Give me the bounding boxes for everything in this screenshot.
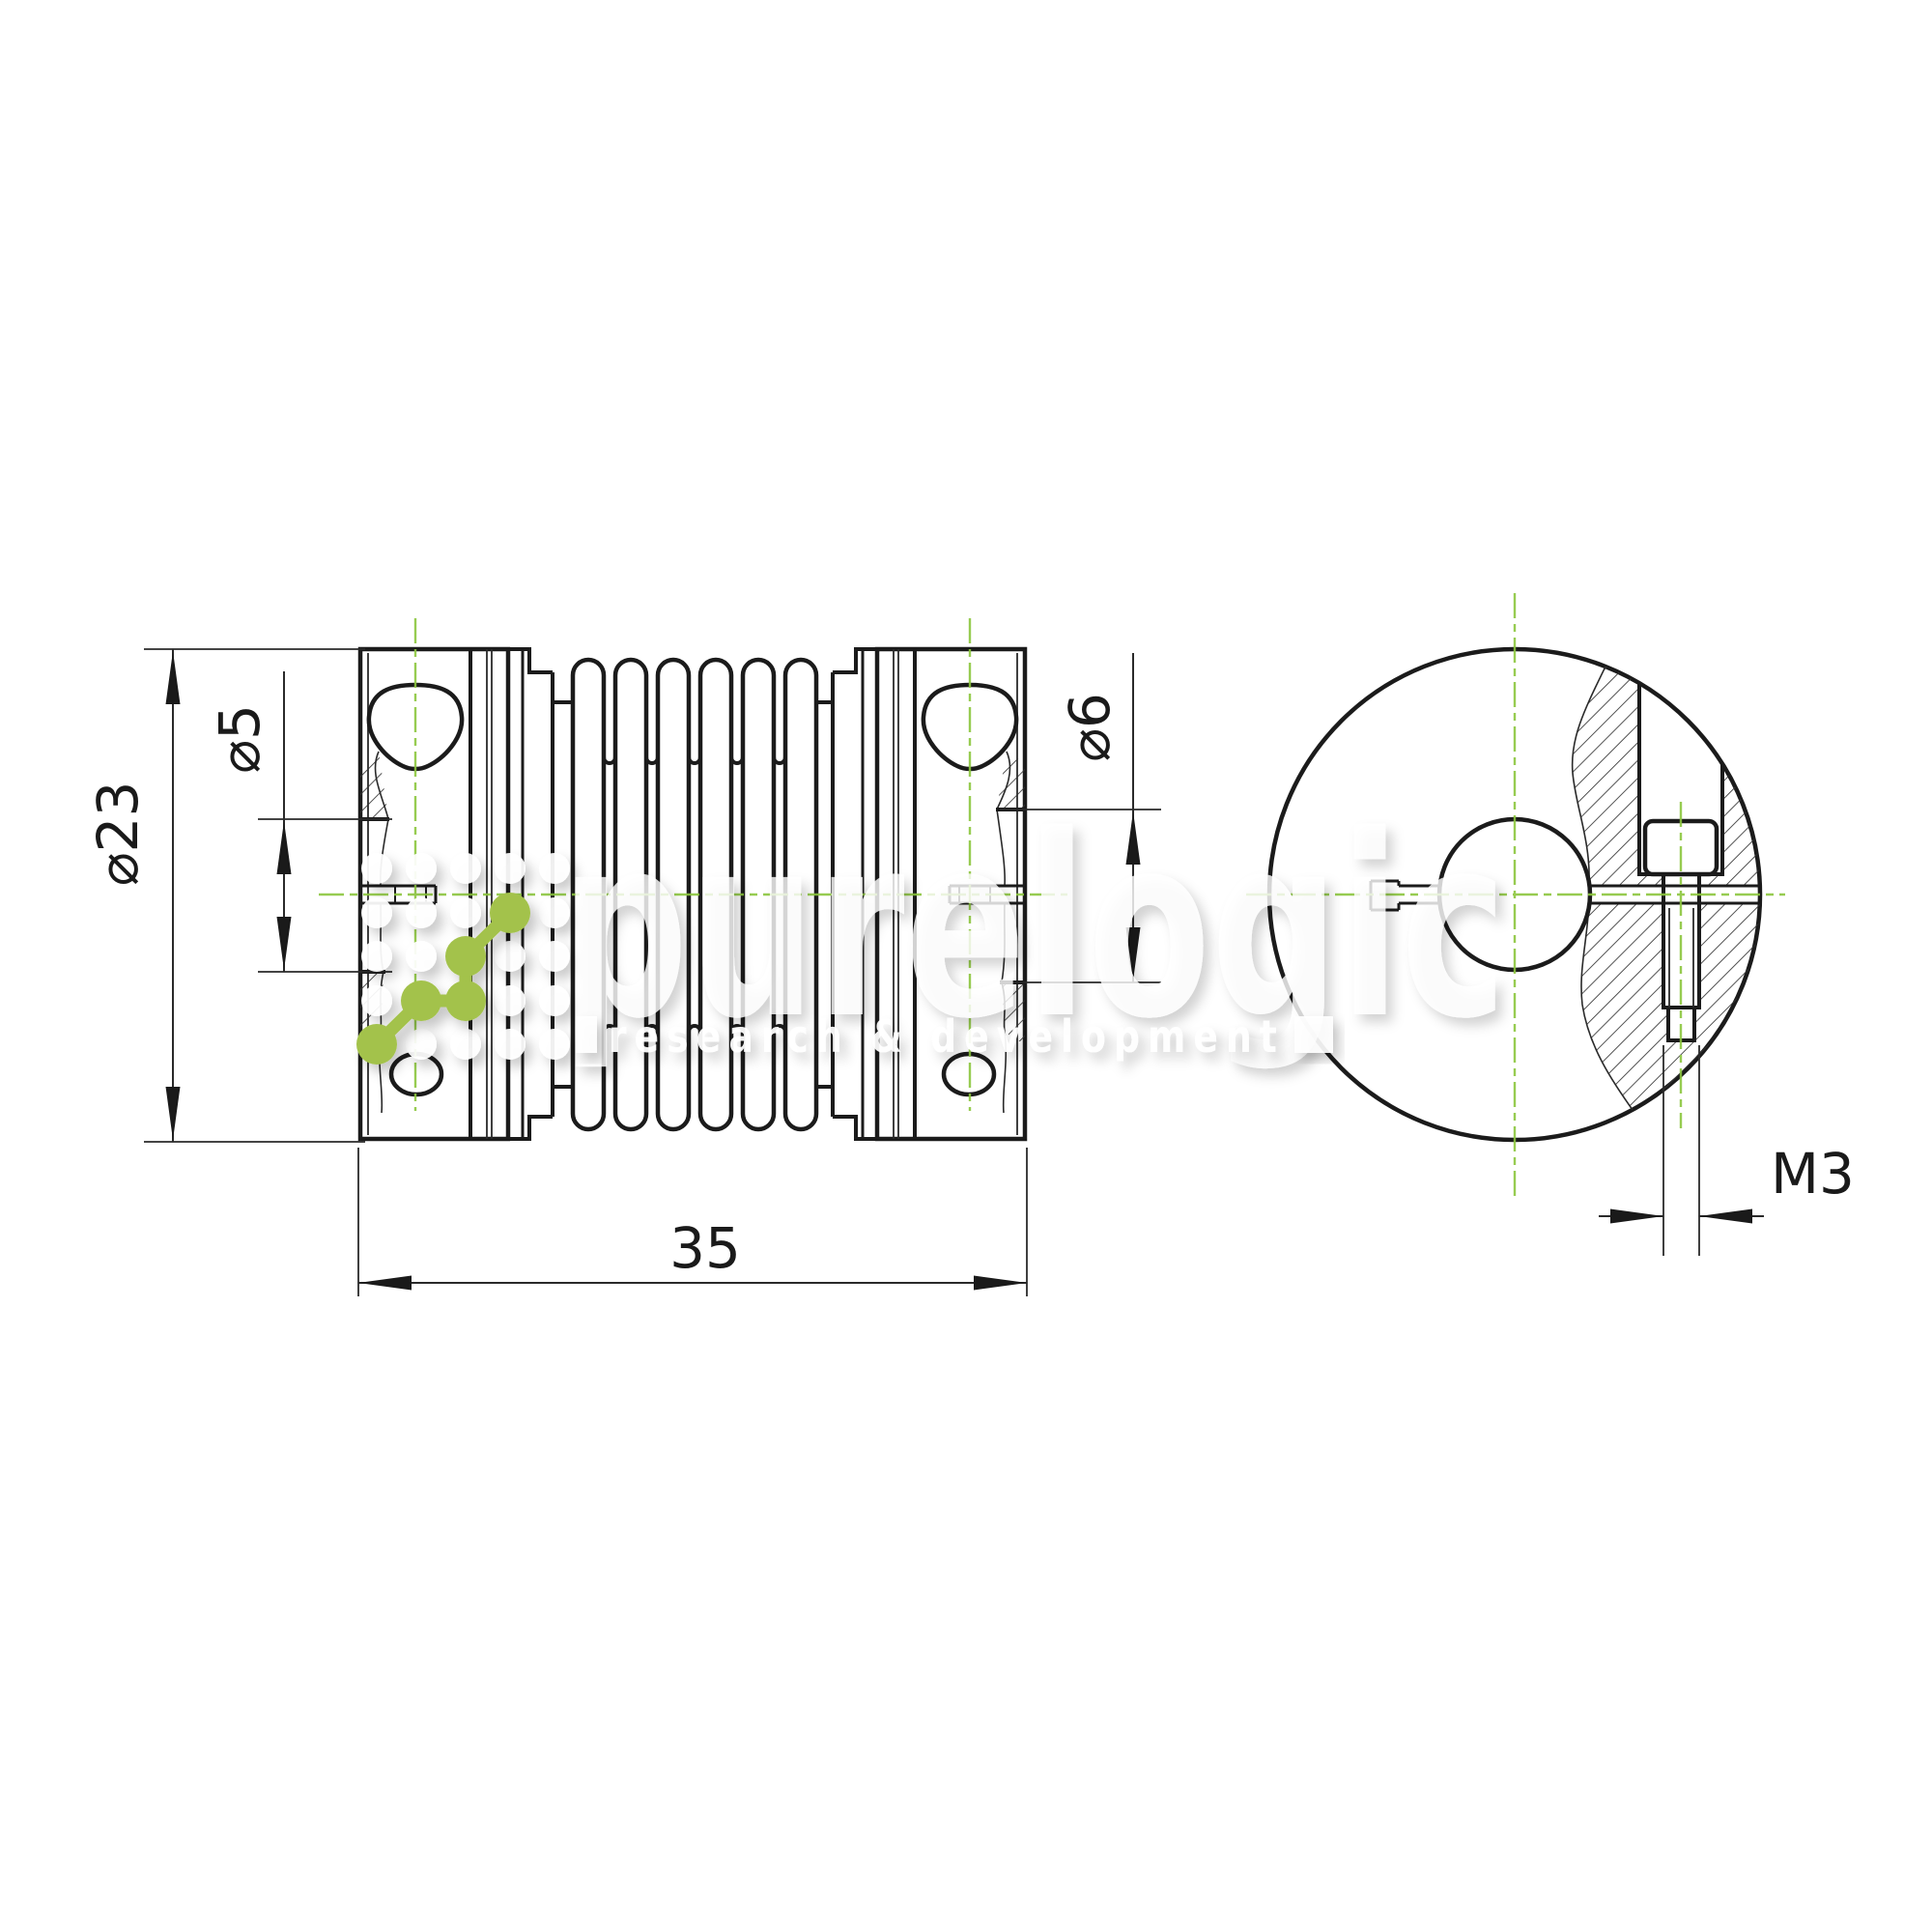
drawing-canvas: ⌀23 ⌀5 ⌀6 35 xyxy=(0,0,1932,1932)
outer-diameter-label: ⌀23 xyxy=(85,781,151,887)
right-bore-label: ⌀6 xyxy=(1057,693,1122,762)
length-label: 35 xyxy=(669,1215,741,1281)
dim-length: 35 xyxy=(358,1148,1027,1296)
left-hub-hatch-upper xyxy=(360,752,388,819)
dim-left-bore: ⌀5 xyxy=(207,671,392,972)
watermark: purelogic research & development xyxy=(356,782,1507,1074)
left-bore-label: ⌀5 xyxy=(207,704,272,774)
watermark-tagline: research & development xyxy=(609,1010,1285,1063)
screw-thread-label: M3 xyxy=(1771,1141,1855,1207)
technical-drawing-page: ⌀23 ⌀5 ⌀6 35 xyxy=(0,0,1932,1932)
